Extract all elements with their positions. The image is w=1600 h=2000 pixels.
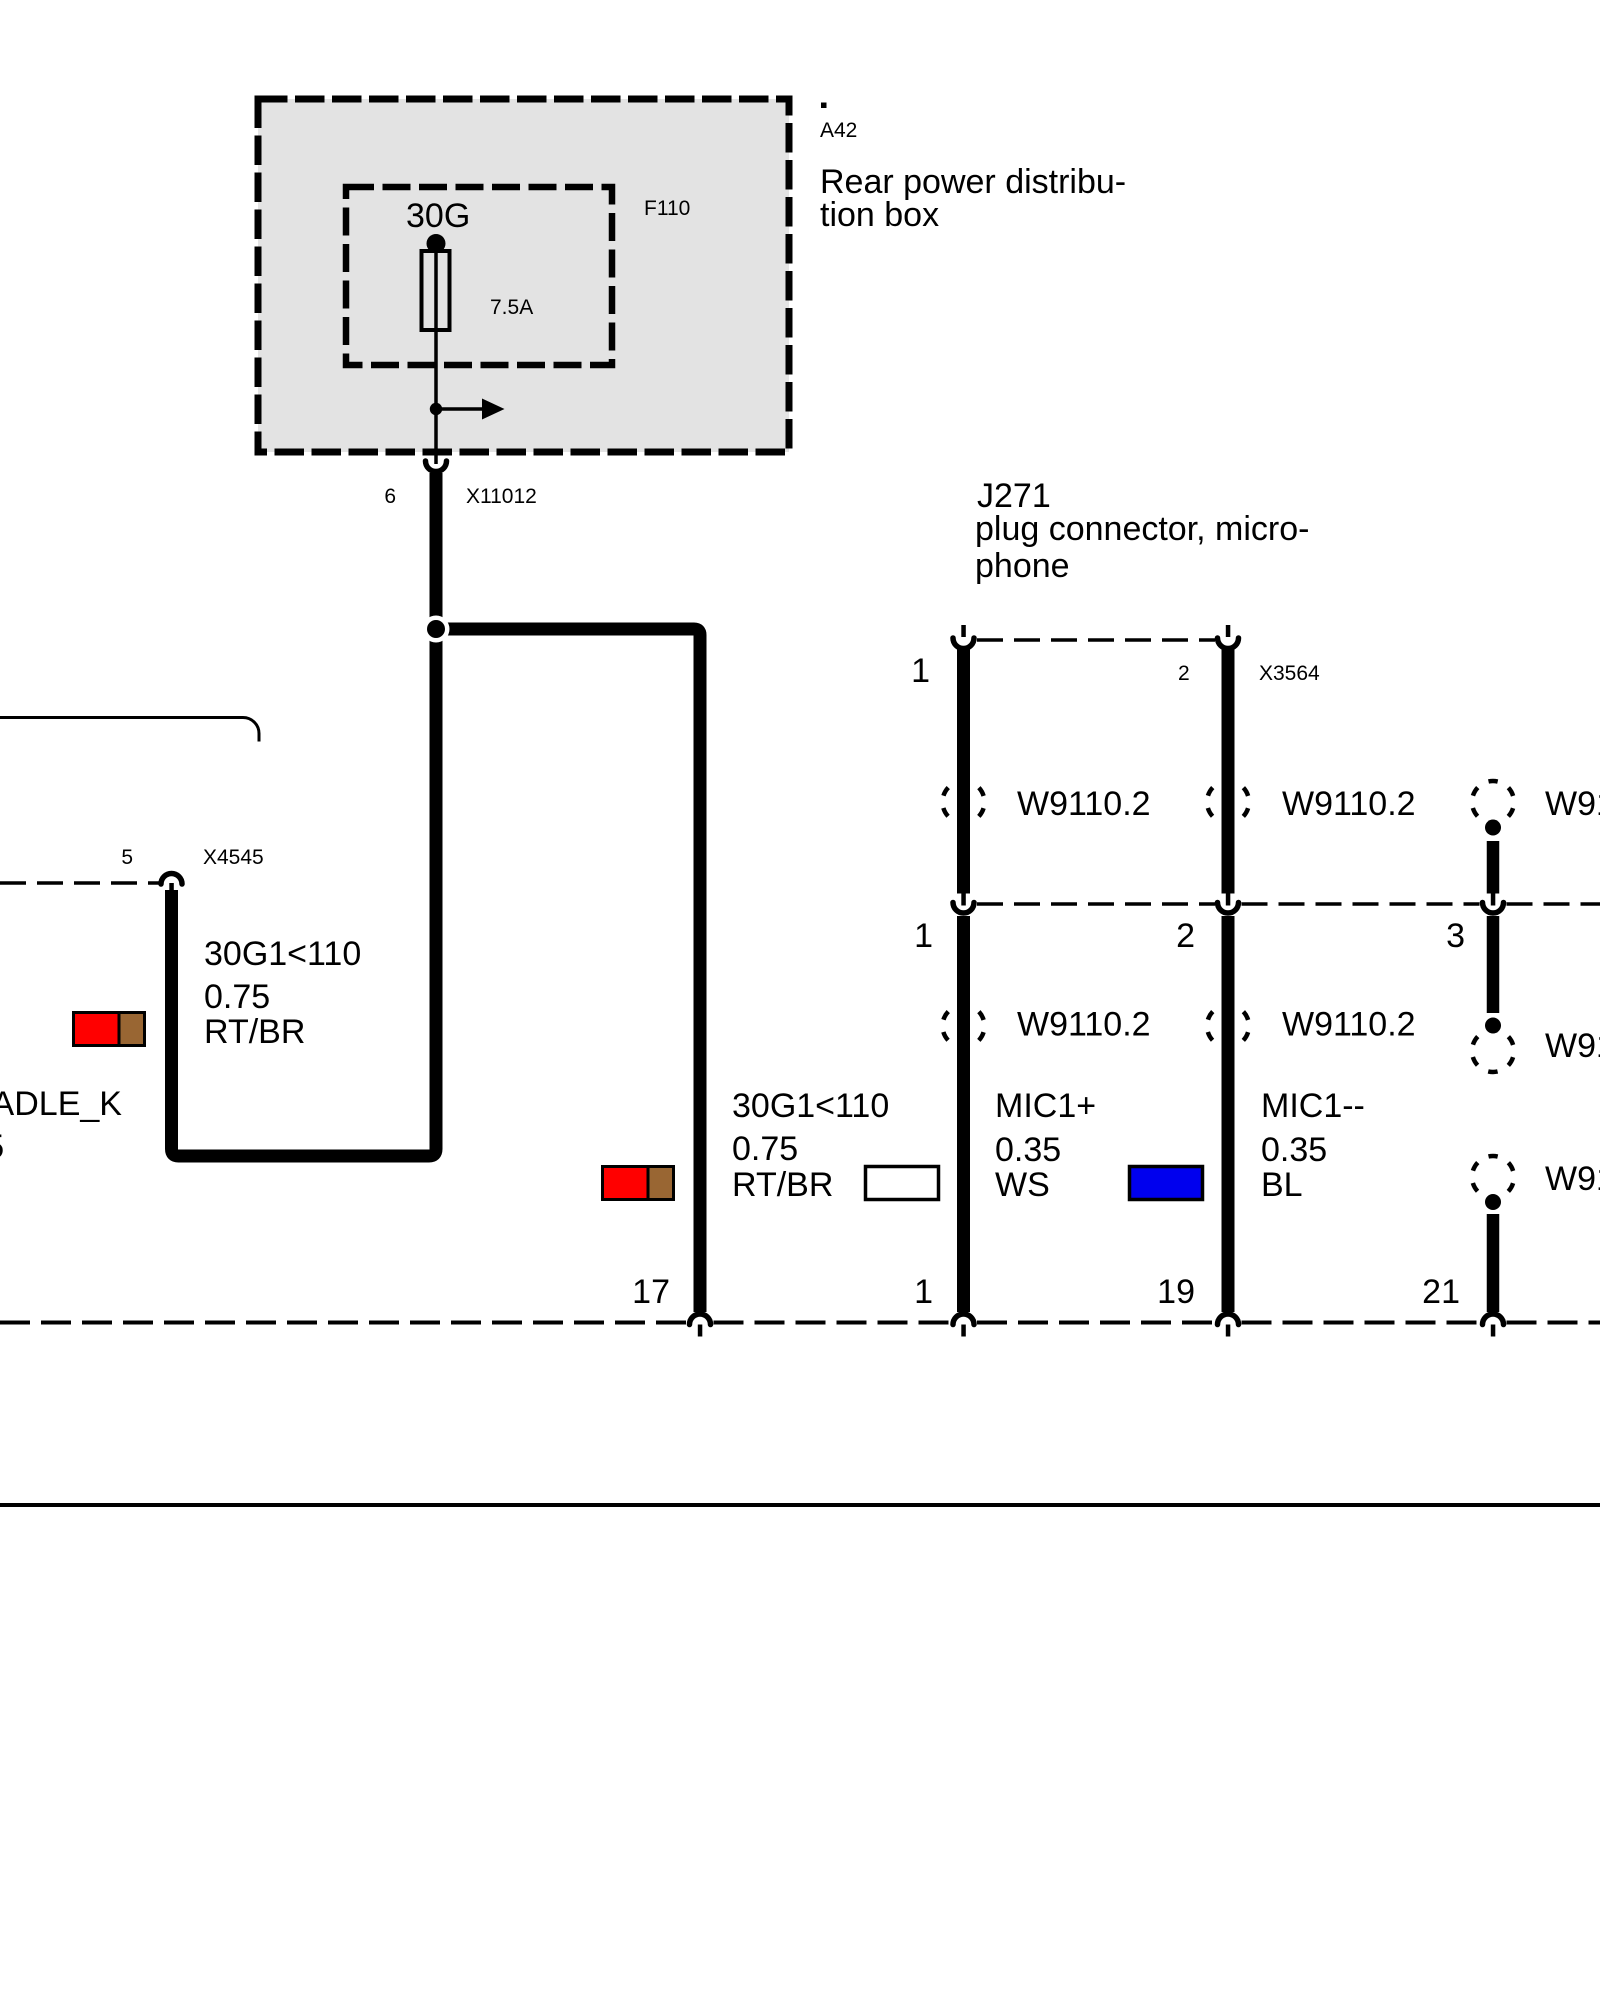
svg-text:19: 19 — [1157, 1273, 1195, 1311]
svg-text:X4545: X4545 — [203, 846, 264, 869]
svg-text:30G1<110: 30G1<110 — [204, 935, 361, 973]
svg-text:X11012: X11012 — [466, 485, 537, 508]
svg-text:W9110.2: W9110.2 — [1017, 1006, 1151, 1044]
svg-text:W9110.2: W9110.2 — [1545, 1160, 1600, 1198]
svg-text:WS: WS — [995, 1166, 1050, 1204]
svg-text:W9110.2: W9110.2 — [1545, 785, 1600, 823]
svg-text:X3564: X3564 — [1259, 662, 1320, 685]
svg-text:W9110.2: W9110.2 — [1282, 1006, 1416, 1044]
svg-text:RADLE_K: RADLE_K — [0, 1085, 122, 1123]
svg-text:A42: A42 — [820, 119, 857, 142]
svg-text:BL: BL — [1261, 1166, 1303, 1204]
svg-text:0.75: 0.75 — [204, 978, 270, 1016]
svg-text:1: 1 — [911, 652, 930, 690]
svg-text:RT/BR: RT/BR — [732, 1166, 833, 1204]
svg-text:17: 17 — [632, 1273, 670, 1311]
svg-text:6: 6 — [384, 485, 396, 508]
svg-text:plug connector, micro-: plug connector, micro- — [975, 510, 1310, 548]
svg-text:MIC1--: MIC1-- — [1261, 1087, 1365, 1125]
svg-text:RT/BR: RT/BR — [204, 1013, 305, 1051]
svg-text:2: 2 — [1176, 917, 1195, 955]
svg-text:phone: phone — [975, 547, 1070, 585]
svg-text:2: 2 — [1178, 662, 1190, 685]
svg-text:3: 3 — [1446, 917, 1465, 955]
svg-text:7.5A: 7.5A — [490, 296, 533, 319]
svg-text:1: 1 — [914, 1273, 933, 1311]
svg-text:tion box: tion box — [820, 196, 939, 234]
svg-text:1: 1 — [914, 917, 933, 955]
svg-text:0.75: 0.75 — [732, 1130, 798, 1168]
svg-text:21: 21 — [1422, 1273, 1460, 1311]
svg-text:F110: F110 — [644, 197, 690, 220]
svg-text:30G: 30G — [406, 197, 470, 235]
svg-text:0.35: 0.35 — [1261, 1131, 1327, 1169]
svg-text:W9110.2: W9110.2 — [1017, 785, 1151, 823]
svg-text:0.75: 0.75 — [0, 1128, 4, 1166]
svg-text:W9110.2: W9110.2 — [1282, 785, 1416, 823]
svg-text:5: 5 — [121, 846, 133, 869]
svg-text:W9110.2: W9110.2 — [1545, 1027, 1600, 1065]
svg-text:MIC1+: MIC1+ — [995, 1087, 1096, 1125]
svg-text:30G1<110: 30G1<110 — [732, 1087, 889, 1125]
svg-text:0.35: 0.35 — [995, 1131, 1061, 1169]
